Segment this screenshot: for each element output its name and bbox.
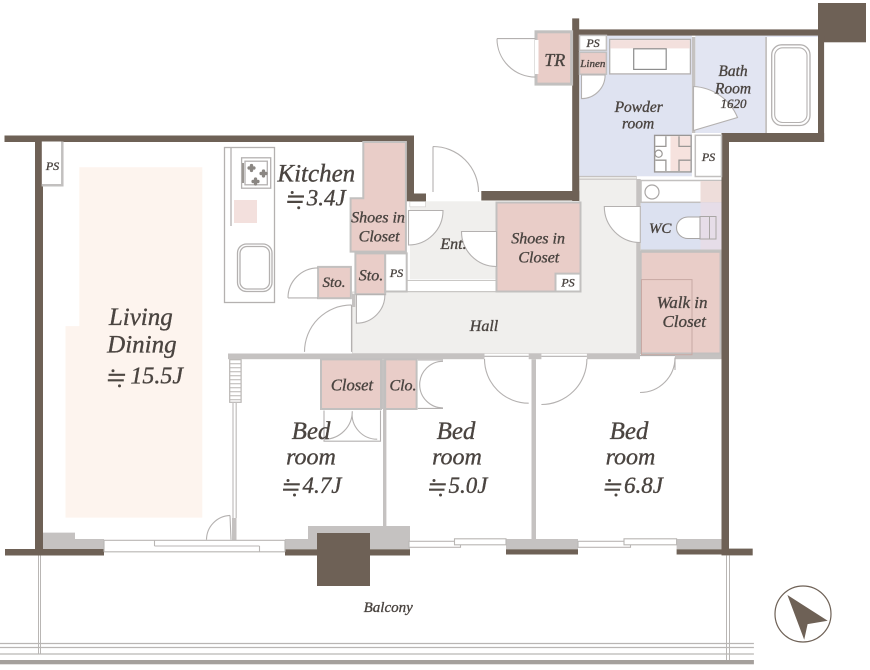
svg-text:Bed: Bed: [292, 418, 331, 445]
svg-text:room: room: [286, 445, 336, 471]
svg-text:Hall: Hall: [469, 318, 499, 335]
svg-text:Bed: Bed: [437, 418, 476, 445]
svg-text:room: room: [622, 116, 654, 133]
svg-text:room: room: [606, 445, 656, 471]
svg-text:Sto.: Sto.: [359, 268, 383, 285]
svg-text:Walk in: Walk in: [657, 293, 708, 312]
svg-text:Balcony: Balcony: [364, 600, 413, 616]
svg-text:Closet: Closet: [359, 229, 400, 246]
svg-text:Kitchen: Kitchen: [276, 161, 355, 188]
svg-text:Bed: Bed: [610, 418, 649, 445]
svg-text:Bath: Bath: [718, 63, 748, 80]
svg-text:5.0J: 5.0J: [449, 473, 490, 498]
svg-text:Dining: Dining: [106, 332, 176, 359]
svg-text:PS: PS: [585, 36, 599, 50]
svg-text:Sto.: Sto.: [323, 275, 346, 291]
svg-text:Closet: Closet: [662, 312, 707, 331]
svg-text:Living: Living: [108, 304, 173, 331]
svg-text:Shoes in: Shoes in: [351, 210, 405, 227]
svg-text:PS: PS: [560, 276, 574, 290]
svg-text:Clo.: Clo.: [389, 378, 416, 395]
svg-text:1620: 1620: [721, 96, 748, 111]
svg-text:Closet: Closet: [331, 376, 374, 395]
svg-text:Shoes in: Shoes in: [511, 231, 565, 248]
svg-text:TR: TR: [544, 50, 565, 70]
svg-text:Closet: Closet: [518, 250, 559, 267]
svg-text:Powder: Powder: [614, 99, 664, 116]
svg-text:Ent.: Ent.: [439, 236, 466, 253]
svg-text:15.5J: 15.5J: [130, 364, 184, 390]
svg-text:6.8J: 6.8J: [624, 473, 665, 498]
svg-text:Room: Room: [714, 80, 751, 97]
svg-text:PS: PS: [389, 266, 403, 280]
svg-text:WC: WC: [649, 221, 672, 237]
svg-text:PS: PS: [701, 150, 715, 164]
svg-text:3.4J: 3.4J: [306, 186, 348, 211]
svg-text:Linen: Linen: [579, 58, 606, 70]
svg-text:room: room: [432, 445, 482, 471]
svg-text:4.7J: 4.7J: [303, 473, 344, 498]
svg-text:PS: PS: [45, 159, 59, 173]
